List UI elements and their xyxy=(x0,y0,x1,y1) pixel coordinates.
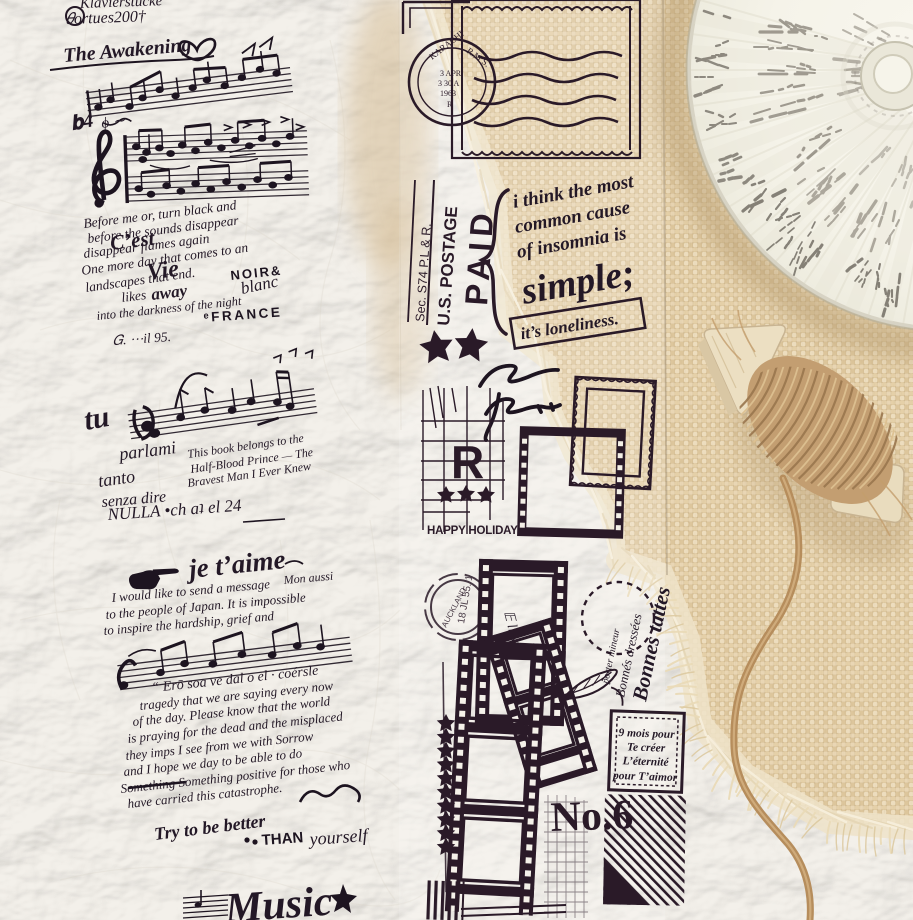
svg-text:HAPPY HOLIDAYS: HAPPY HOLIDAYS xyxy=(427,525,526,537)
svg-text:3 APR: 3 APR xyxy=(440,69,462,78)
svg-text:THAN: THAN xyxy=(261,829,304,849)
svg-text:ϕ ∼: ϕ ∼ xyxy=(100,113,127,132)
svg-text:3 30 A: 3 30 A xyxy=(438,79,460,88)
svg-text:L’éternité: L’éternité xyxy=(621,755,669,769)
svg-text:likes: likes xyxy=(121,287,147,305)
svg-text:R: R xyxy=(451,436,484,488)
svg-text:1963: 1963 xyxy=(440,89,456,98)
svg-text:R: R xyxy=(447,100,453,109)
svg-text:Te créer: Te créer xyxy=(627,741,666,754)
svg-text:𝐛4: 𝐛4 xyxy=(69,109,95,135)
svg-text:9 mois pour: 9 mois pour xyxy=(618,727,675,741)
svg-text:Music: Music xyxy=(222,879,334,920)
svg-text:pour T’aimor: pour T’aimor xyxy=(612,770,678,784)
